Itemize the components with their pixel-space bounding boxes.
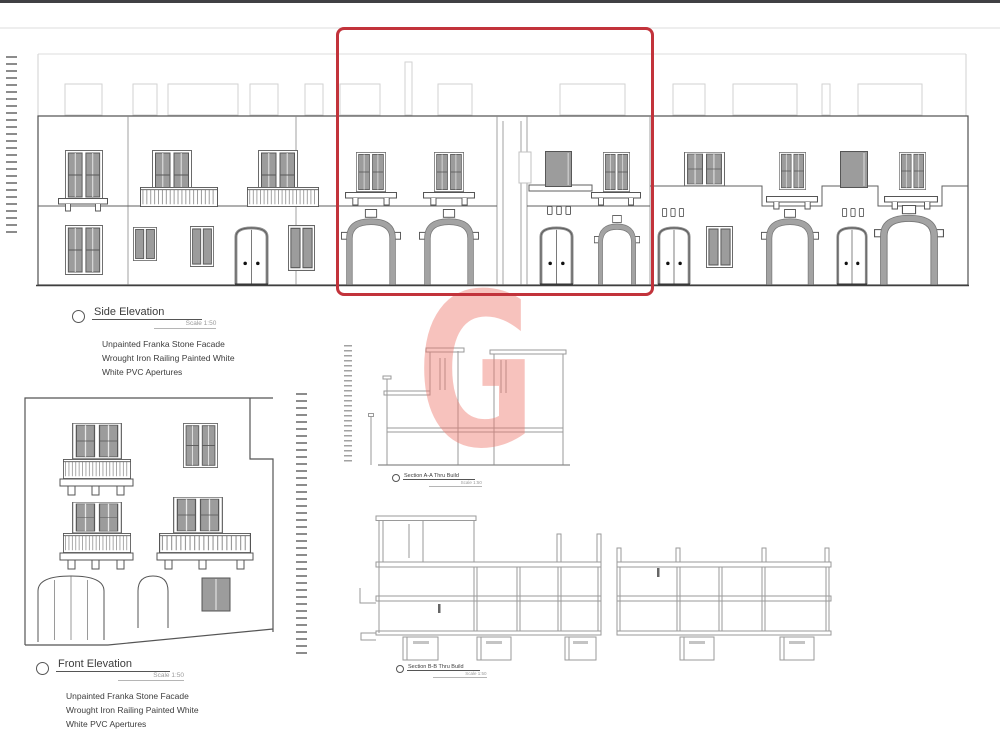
side-elevation-note: White PVC Apertures — [102, 365, 235, 379]
side-elevation-title: Side Elevation — [92, 306, 202, 320]
front-elevation-note: White PVC Apertures — [66, 717, 199, 731]
front-elevation-note: Wrought Iron Railing Painted White — [66, 703, 199, 717]
section-a-label: Section A-A Thru Build Scale 1:50 — [392, 473, 475, 487]
side-elevation-label: Side Elevation Scale 1:50 Unpainted Fran… — [72, 306, 235, 379]
front-elevation-label: Front Elevation Scale 1:50 Unpainted Fra… — [36, 658, 199, 731]
section-a-scale: Scale 1:50 — [429, 480, 482, 487]
section-a-title: Section A-A Thru Build — [403, 473, 475, 480]
label-circle-icon — [396, 665, 404, 673]
section-b-title: Section B-B Thru Build — [407, 664, 480, 671]
level-ruler-side — [6, 56, 17, 234]
front-elevation-title: Front Elevation — [56, 658, 170, 672]
side-elevation-note: Unpainted Franka Stone Facade — [102, 337, 235, 351]
label-circle-icon — [36, 662, 49, 675]
drawing-sheet: G Side Elevation Scale 1:50 Unpainted Fr… — [0, 0, 1000, 750]
label-circle-icon — [72, 310, 85, 323]
side-elevation-note: Wrought Iron Railing Painted White — [102, 351, 235, 365]
level-ruler-section — [344, 345, 352, 465]
front-elevation-scale: Scale 1:50 — [118, 672, 184, 681]
label-circle-icon — [392, 474, 400, 482]
front-elevation-note: Unpainted Franka Stone Facade — [66, 689, 199, 703]
front-elevation-drawing — [18, 383, 318, 673]
highlight-rectangle — [336, 27, 654, 296]
section-b-label: Section B-B Thru Build Scale 1:50 — [396, 664, 480, 678]
section-b-drawing — [352, 508, 882, 673]
level-ruler-front — [296, 393, 307, 654]
section-a-drawing — [338, 338, 578, 478]
section-b-scale: Scale 1:50 — [433, 671, 487, 678]
side-elevation-scale: Scale 1:50 — [154, 320, 216, 329]
